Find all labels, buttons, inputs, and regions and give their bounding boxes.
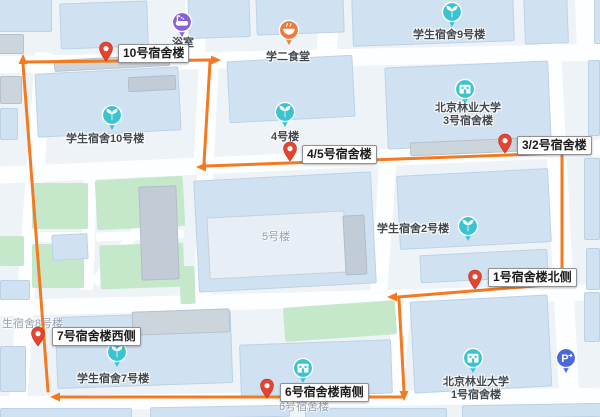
route-arrow	[196, 163, 206, 172]
poi-building-icon[interactable]	[292, 357, 314, 385]
route-pin[interactable]	[467, 269, 483, 290]
poi-building-icon[interactable]	[454, 78, 476, 106]
route-pin-label[interactable]: 4/5号宿舍楼	[302, 145, 377, 164]
route-pin[interactable]	[497, 133, 513, 154]
map-canvas[interactable]: 浴室 学二食堂 学生宿舍9号楼 北京林业大学3号宿舍楼 4号楼 学生宿舍10号楼…	[0, 0, 600, 417]
route-segment	[206, 153, 563, 166]
route-pin-label[interactable]: 3/2号宿舍楼	[517, 136, 592, 155]
route-pin[interactable]	[30, 326, 46, 347]
route-segment	[204, 62, 210, 163]
route-pin-label[interactable]: 7号宿舍楼西侧	[52, 327, 141, 346]
route-arrow	[19, 54, 28, 64]
route-segment	[399, 299, 404, 391]
poi-label: 北京林业大学1号宿舍楼	[443, 376, 509, 402]
route-pin-label[interactable]: 10号宿舍楼	[118, 44, 189, 63]
poi-sprout-icon[interactable]	[457, 215, 479, 243]
route-pin-label[interactable]: 1号宿舍楼北侧	[488, 268, 577, 287]
poi-bath-icon[interactable]	[171, 11, 193, 39]
route-pin[interactable]	[259, 378, 275, 399]
poi-sprout-icon[interactable]	[441, 1, 463, 29]
poi-label: 学生宿舍2号楼	[377, 220, 449, 236]
poi-label: 学生宿舍7号楼	[77, 370, 149, 386]
route-arrow	[211, 56, 221, 65]
poi-sprout-icon[interactable]	[101, 104, 123, 132]
poi-building-icon[interactable]	[462, 347, 484, 375]
poi-food-icon[interactable]	[278, 19, 300, 47]
poi-label: 学生宿舍10号楼	[66, 130, 144, 146]
poi-label: 学二食堂	[266, 48, 310, 64]
poi-sprout-icon[interactable]	[274, 101, 296, 129]
route-pin[interactable]	[282, 141, 298, 162]
route-arrow	[387, 293, 397, 302]
poi-parking-icon[interactable]: P	[555, 347, 577, 375]
route-arrow	[50, 393, 60, 402]
svg-text:P: P	[561, 353, 568, 365]
route-pin-label[interactable]: 6号宿舍楼南侧	[280, 383, 369, 402]
route-pin[interactable]	[98, 41, 114, 62]
